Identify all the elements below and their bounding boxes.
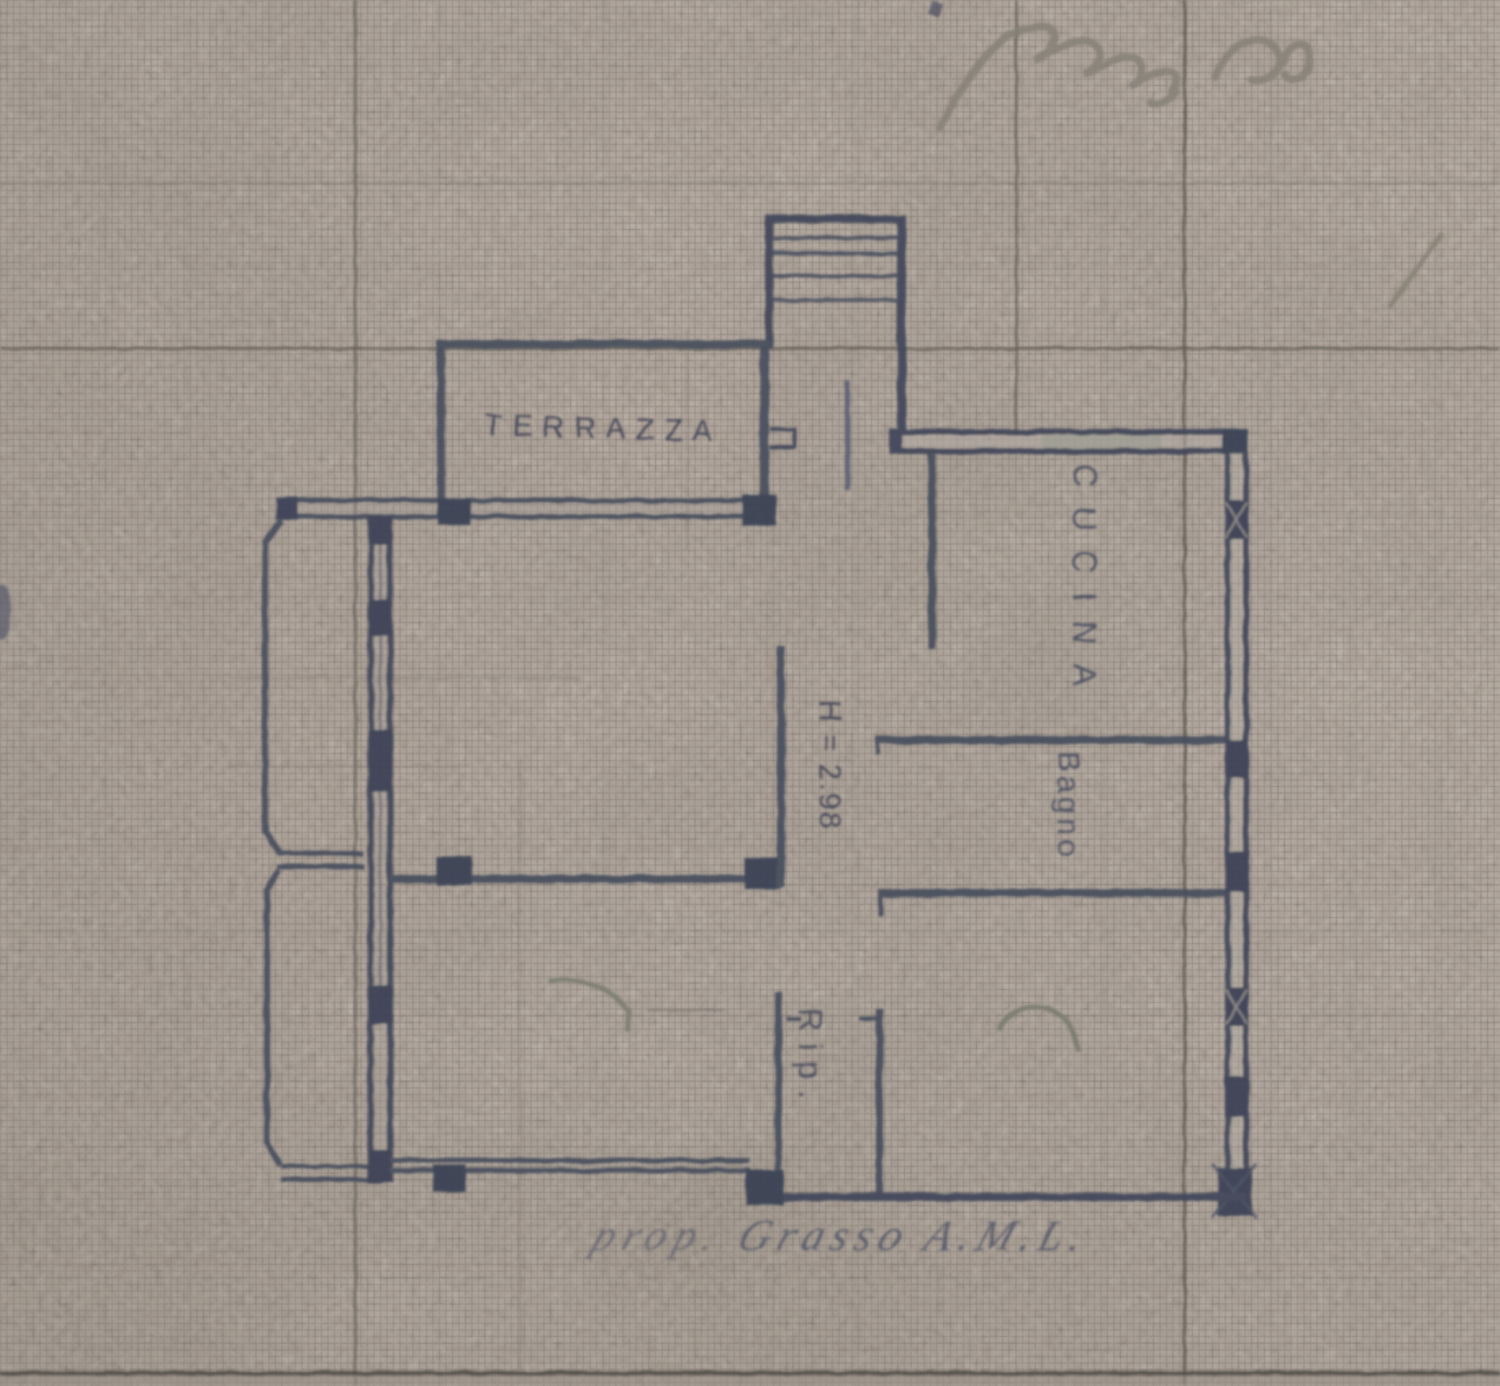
svg-text:TERRAZZA: TERRAZZA (484, 409, 723, 448)
svg-text:Rip.: Rip. (792, 1008, 829, 1111)
svg-text:CUCINA: CUCINA (1066, 464, 1103, 705)
svg-text:prop. Grasso A.M.L.: prop. Grasso A.M.L. (584, 1211, 1097, 1260)
svg-text:H = 2.98: H = 2.98 (813, 700, 846, 830)
svg-text:Bagno: Bagno (1051, 751, 1086, 861)
